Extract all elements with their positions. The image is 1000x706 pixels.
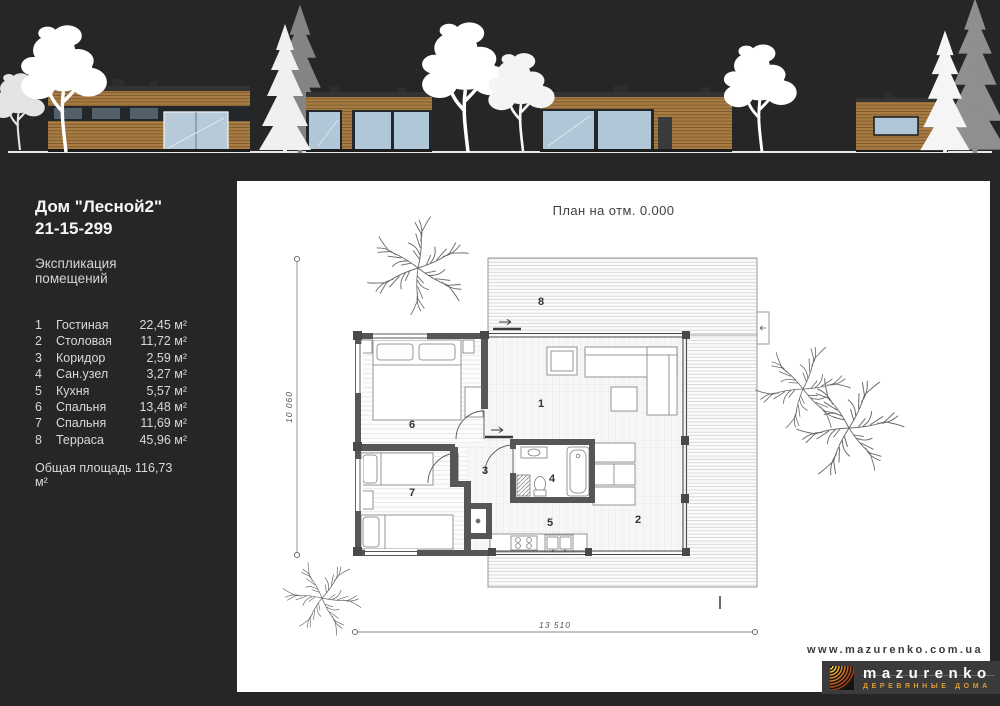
room-label-8: 8 <box>538 296 544 308</box>
facade-house-2 <box>306 86 432 152</box>
facade-house-3 <box>540 85 732 152</box>
floor-plan-svg: 10 060 13 510 1 2 3 4 5 6 7 8 <box>237 181 990 692</box>
presentation-sheet: Дом "Лесной2" 21-15-299 Экспликация поме… <box>0 0 1000 706</box>
elevation-drawing <box>0 0 1000 172</box>
table-row: 4 Сан.узел 3,27 м² <box>35 366 187 382</box>
mazurenko-logo: mazurenko ДЕРЕВЯННЫЕ ДОМА <box>822 661 1000 694</box>
room-label-6: 6 <box>409 419 415 431</box>
table-row: 7 Спальня 11,69 м² <box>35 415 187 431</box>
room-label-7: 7 <box>409 487 415 499</box>
brand-url: www.mazurenko.com.ua <box>620 644 983 656</box>
kitchen-units <box>490 534 587 552</box>
room-label-3: 3 <box>482 465 488 477</box>
table-row: 8 Терраса 45,96 м² <box>35 432 187 448</box>
wood-grain-logo-icon <box>830 666 854 690</box>
project-title: Дом "Лесной2" <box>35 196 187 218</box>
info-block: Дом "Лесной2" 21-15-299 Экспликация поме… <box>35 196 187 489</box>
svg-text:10 060: 10 060 <box>284 391 294 423</box>
dimension-horizontal: 13 510 <box>352 620 757 635</box>
table-row: 3 Коридор 2,59 м² <box>35 350 187 366</box>
dimension-vertical: 10 060 <box>284 256 300 557</box>
room-schedule: 1 Гостиная 22,45 м² 2 Столовая 11,72 м² … <box>35 317 187 448</box>
wardrobes <box>593 443 635 505</box>
brand-name: mazurenko <box>863 666 992 681</box>
schedule-title: Экспликация помещений <box>35 256 187 286</box>
plan-panel: План на отм. 0.000 <box>237 181 990 692</box>
total-area: Общая площадь 116,73 м² <box>35 461 187 489</box>
logo-text: mazurenko ДЕРЕВЯННЫЕ ДОМА <box>863 666 992 690</box>
table-row: 1 Гостиная 22,45 м² <box>35 317 187 333</box>
tree-silhouette <box>724 44 797 152</box>
room-label-2: 2 <box>635 514 641 526</box>
room-label-1: 1 <box>538 398 544 410</box>
storage-mark <box>476 519 480 523</box>
room-label-4: 4 <box>549 473 556 485</box>
svg-text:13 510: 13 510 <box>539 620 571 630</box>
brand-tagline: ДЕРЕВЯННЫЕ ДОМА <box>863 683 992 690</box>
table-row: 5 Кухня 5,57 м² <box>35 383 187 399</box>
table-row: 6 Спальня 13,48 м² <box>35 399 187 415</box>
table-row: 2 Столовая 11,72 м² <box>35 333 187 349</box>
project-code: 21-15-299 <box>35 218 187 240</box>
room-label-5: 5 <box>547 517 553 529</box>
